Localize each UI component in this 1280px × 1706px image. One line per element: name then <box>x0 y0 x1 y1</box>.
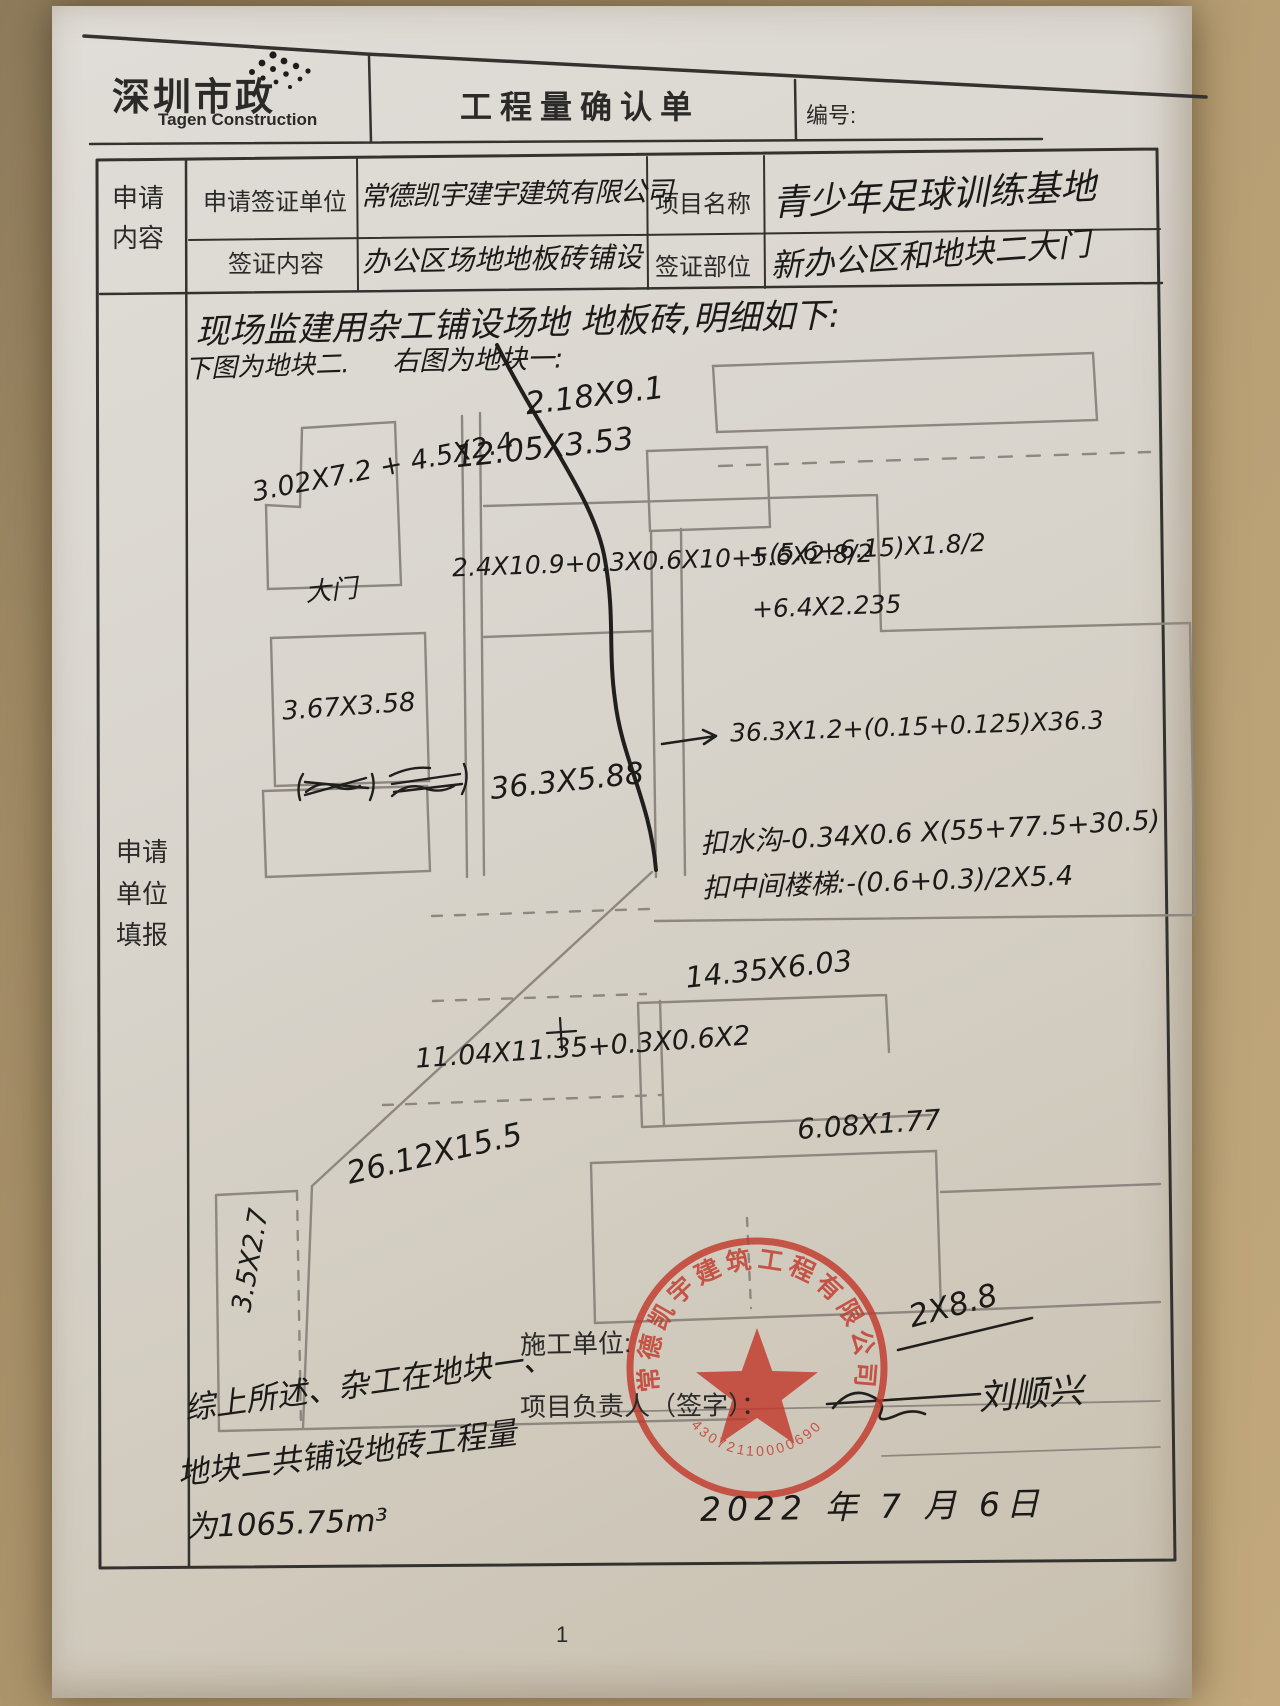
arrow-icon <box>662 730 716 744</box>
sketch-intro-right: 右图为地块一: <box>392 337 564 379</box>
apply-unit-label: 申请签证单位 <box>203 182 347 217</box>
apply-unit-value: 常德凯宇建宇建筑有限公司 <box>360 169 673 213</box>
block2-building-outline <box>266 422 401 589</box>
bottom-big-rect <box>591 1151 941 1323</box>
visa-content-value: 办公区场地地板砖铺设 <box>362 236 643 281</box>
logo-subtitle: Tagen Construction <box>158 110 317 130</box>
visa-part-label: 签证部位 <box>655 247 751 282</box>
block1-right-spine <box>651 529 685 877</box>
gate-label: 大门 <box>303 568 358 609</box>
date-value: 2022 年 7 月 6日 <box>700 1477 1046 1531</box>
company-stamp: 常德凯宇建筑工程有限公司 43072110000690 <box>630 1241 884 1495</box>
block1-top-rect <box>713 353 1097 432</box>
conclusion-line3: 为1065.75m³ <box>185 1494 388 1546</box>
form-title: 工程量确认单 <box>380 82 780 128</box>
block1-left-spine <box>462 413 484 877</box>
crossed-out-scribble <box>299 774 374 800</box>
form-number-label: 编号: <box>806 98 856 130</box>
visa-content-label: 签证内容 <box>228 244 324 279</box>
fill-section-label: 申请 单位 填报 <box>116 832 168 957</box>
manager-signature: 刘顺兴 <box>976 1362 1084 1420</box>
manager-label: 项目负责人（签字）： <box>520 1385 767 1424</box>
page-number: 1 <box>556 1622 568 1648</box>
sketch-intro-left: 下图为地块二. <box>184 343 349 386</box>
construction-unit-label: 施工单位: <box>520 1323 632 1362</box>
measure-formula-add2: +6.4X2.235 <box>752 589 902 623</box>
svg-text:43072110000690: 43072110000690 <box>689 1417 826 1460</box>
stamp-serial-number: 43072110000690 <box>689 1417 826 1460</box>
section-label-apply-content: 申请 内容 <box>112 178 164 259</box>
